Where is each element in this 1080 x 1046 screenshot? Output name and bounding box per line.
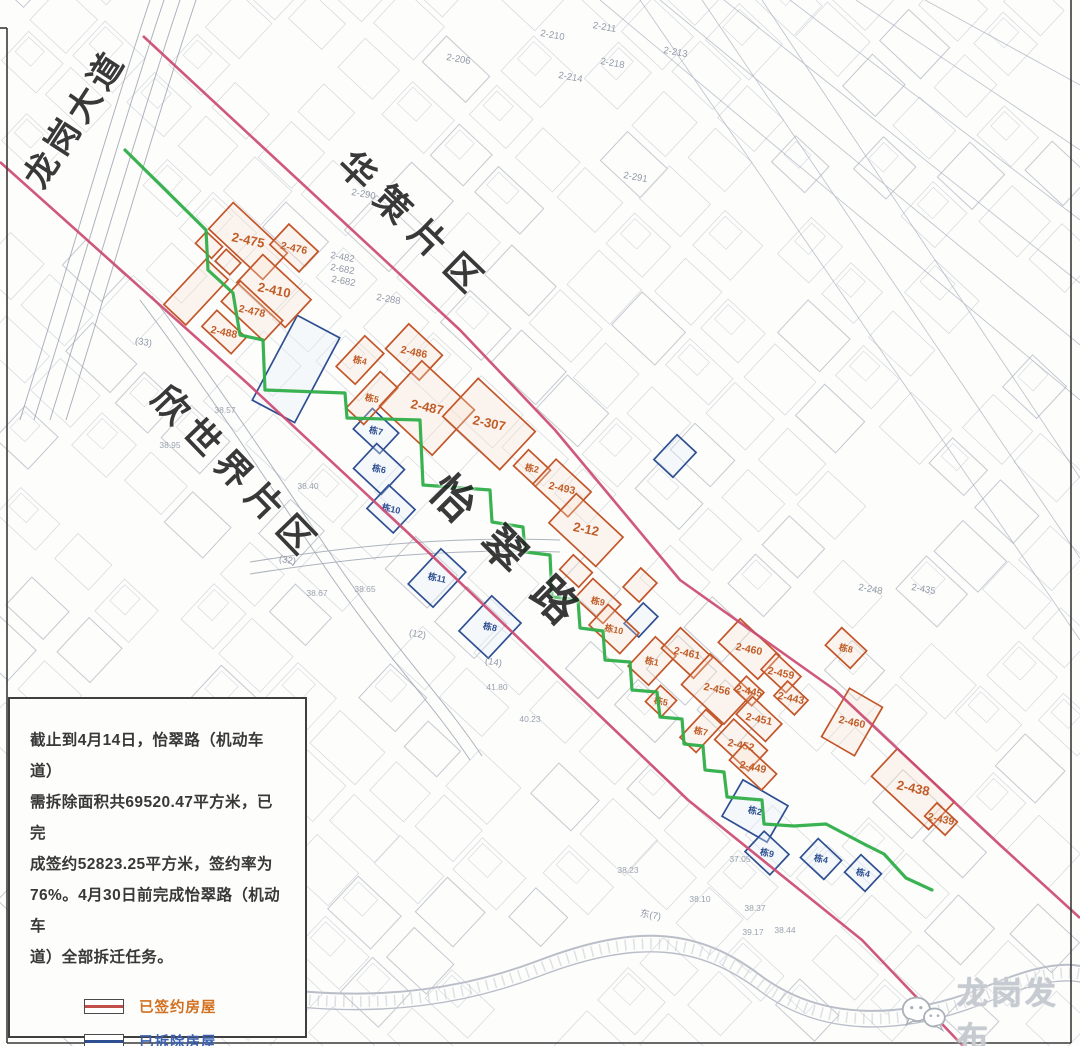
legend-label: 已签约房屋 (139, 996, 217, 1017)
legend-item-demolished: 已拆除房屋 (84, 1024, 305, 1046)
elevation-label: 38.67 (306, 588, 328, 598)
info-text-line: 成签约52823.25平方米，签约率为 (30, 849, 287, 880)
map-canvas: 栋7栋6栋10栋11栋8栋2栋9栋4栋42-4752-4762-4102-478… (0, 0, 1080, 1046)
elevation-label: 38.23 (617, 865, 639, 875)
legend-label: 已拆除房屋 (139, 1031, 217, 1046)
legend: 已签约房屋 已拆除房屋 更新单元分界线 未签约房屋 (10, 989, 305, 1046)
elevation-label: 38.10 (689, 894, 711, 904)
elevation-label: 38.40 (297, 481, 319, 491)
wechat-icon (900, 991, 949, 1035)
elevation-label: 41.80 (486, 682, 508, 692)
info-box: 截止到4月14日，怡翠路（机动车道） 需拆除面积共69520.47平方米，已完 … (8, 697, 307, 1038)
info-text-line: 76%。4月30日前完成怡翠路（机动车 (30, 880, 287, 942)
elevation-label: 38.37 (744, 903, 766, 913)
info-text: 截止到4月14日，怡翠路（机动车道） 需拆除面积共69520.47平方米，已完 … (10, 699, 305, 973)
watermark: 龙岗发布 (900, 968, 1080, 1046)
info-text-line: 需拆除面积共69520.47平方米，已完 (30, 787, 287, 849)
signed-house-swatch (84, 999, 124, 1014)
elevation-label: 38.44 (774, 925, 796, 935)
elevation-label: 38.65 (354, 584, 376, 594)
info-text-line: 截止到4月14日，怡翠路（机动车道） (30, 725, 287, 787)
elevation-label: 40.23 (519, 714, 541, 724)
legend-item-signed: 已签约房屋 (84, 989, 305, 1024)
elevation-label: 39.17 (742, 927, 764, 937)
info-text-line: 道）全部拆迁任务。 (30, 942, 287, 973)
elevation-label: 37.05 (729, 854, 751, 864)
demolished-house-swatch (84, 1034, 124, 1046)
watermark-text: 龙岗发布 (957, 968, 1080, 1046)
